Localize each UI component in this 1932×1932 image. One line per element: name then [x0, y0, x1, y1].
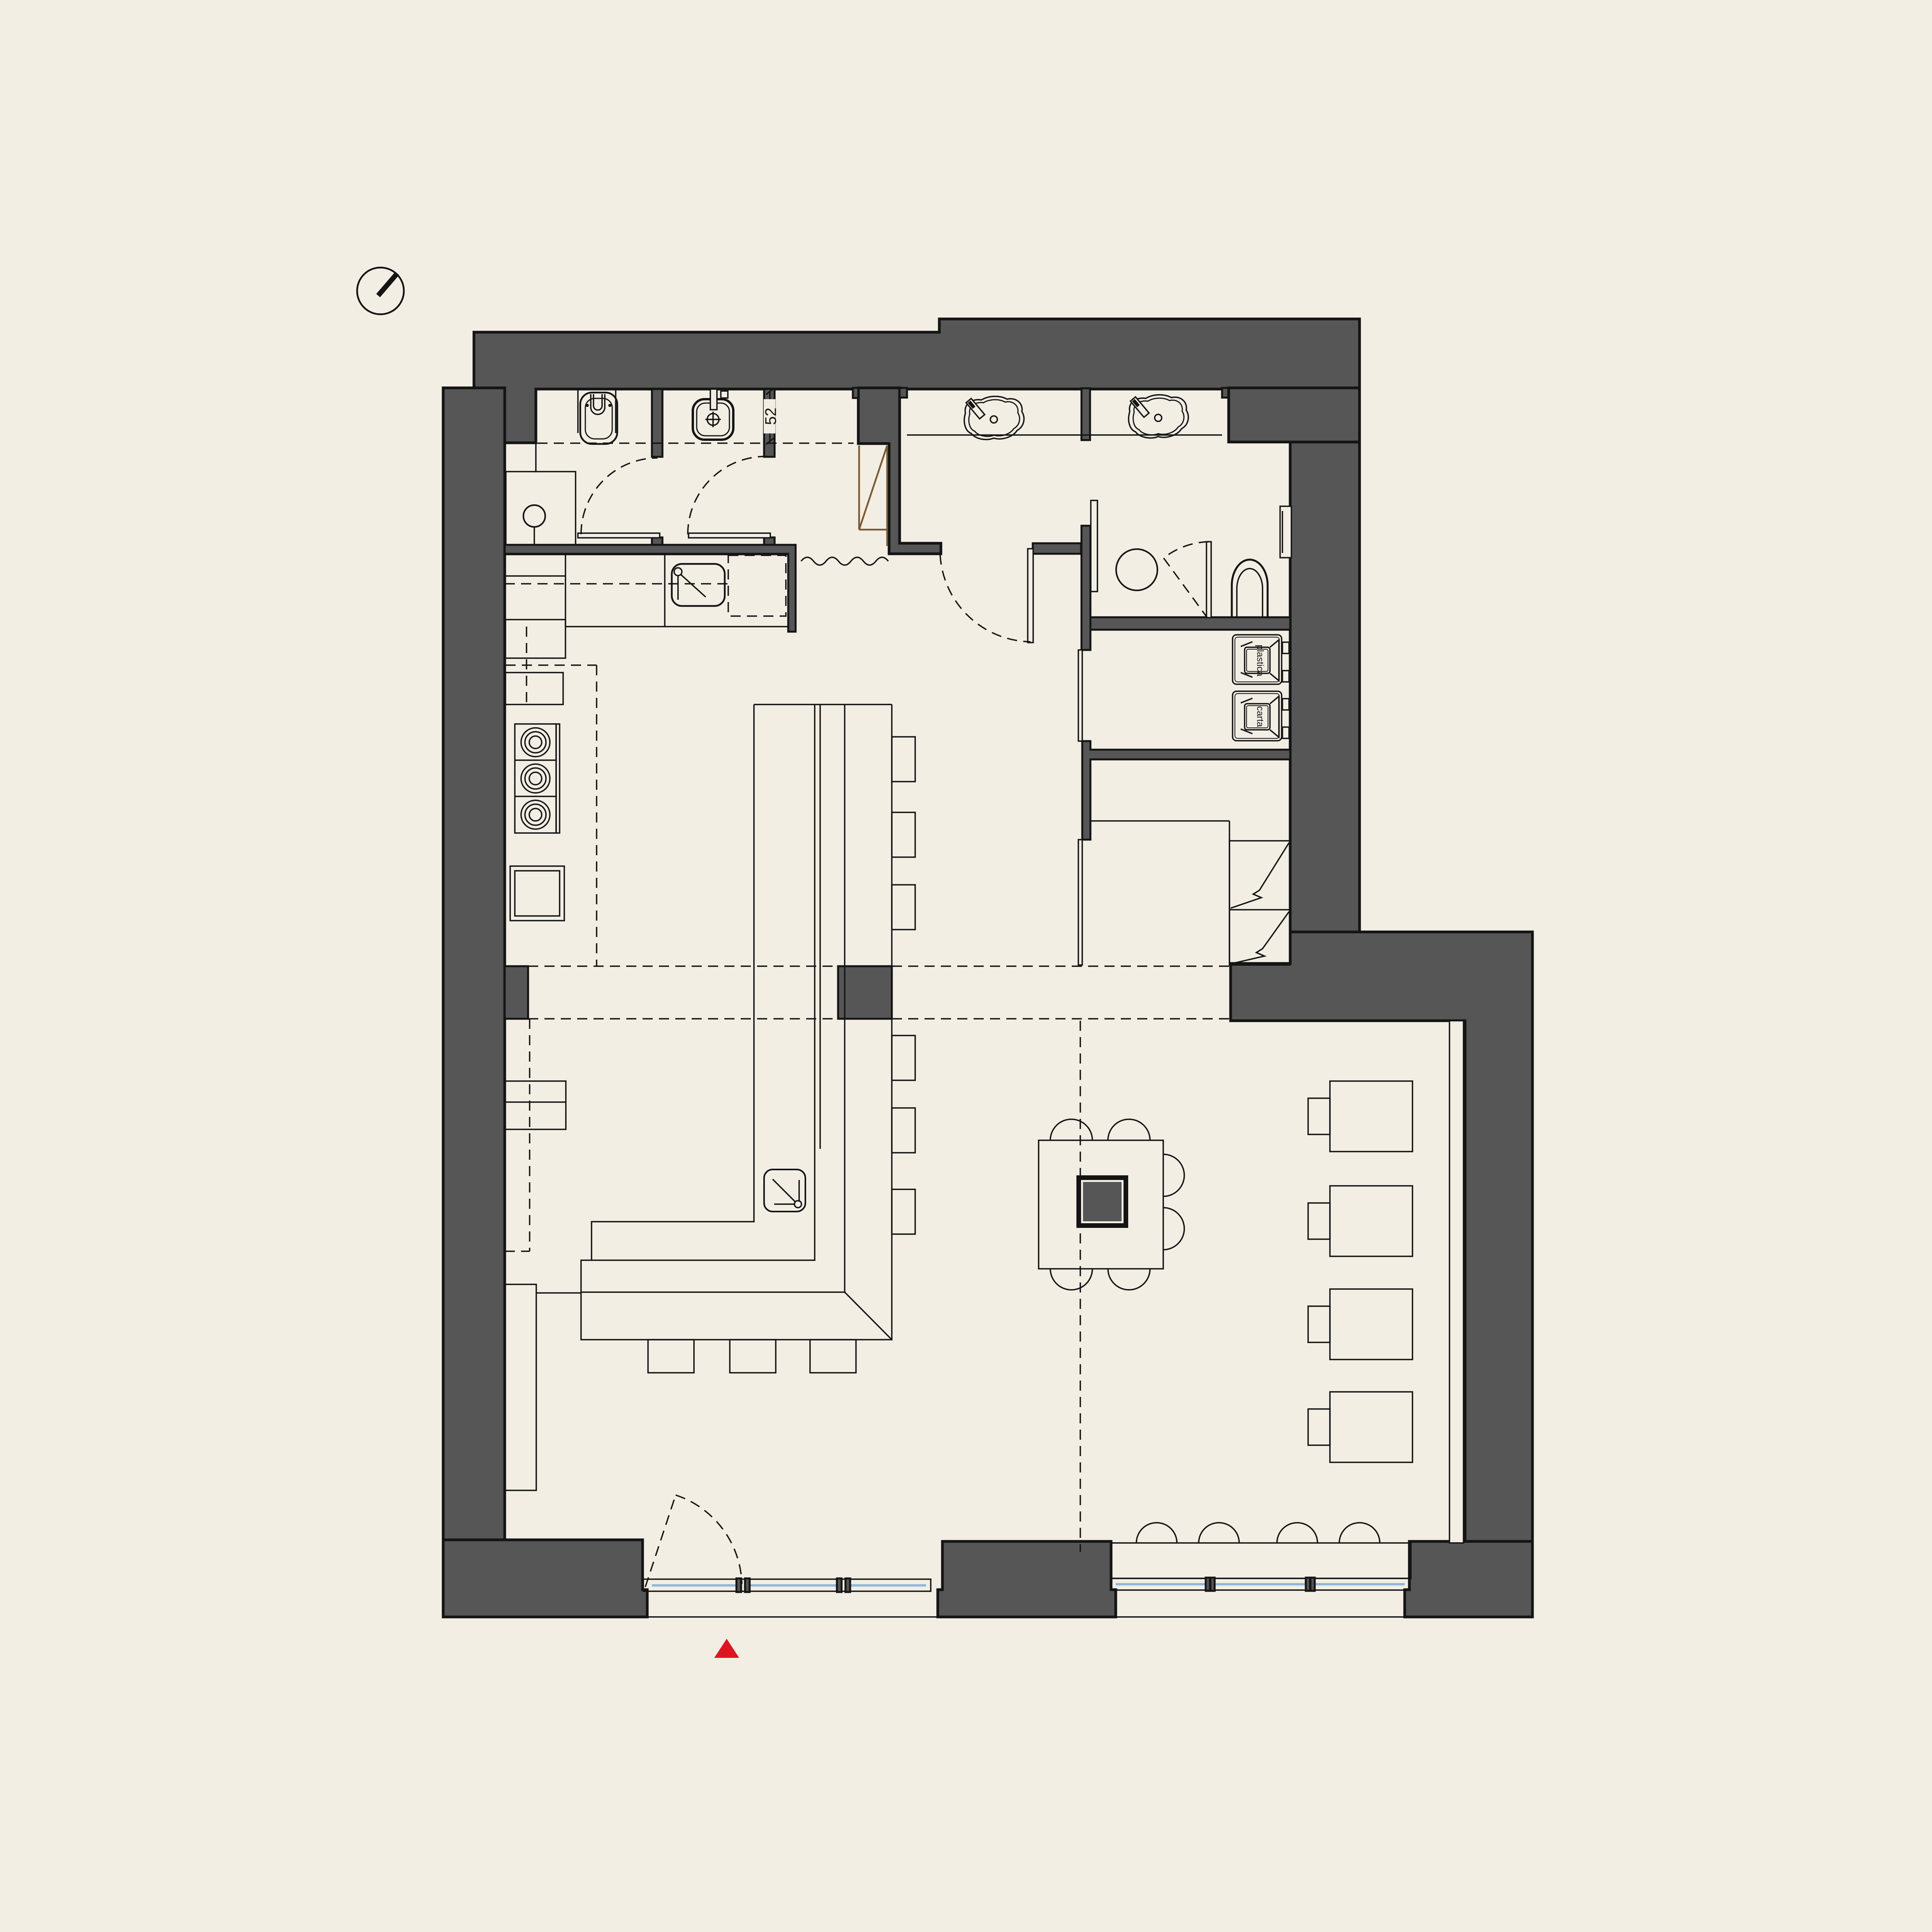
svg-text:plastica: plastica [1255, 645, 1265, 676]
svg-text:52: 52 [763, 408, 780, 425]
svg-text:carta: carta [1255, 706, 1265, 727]
